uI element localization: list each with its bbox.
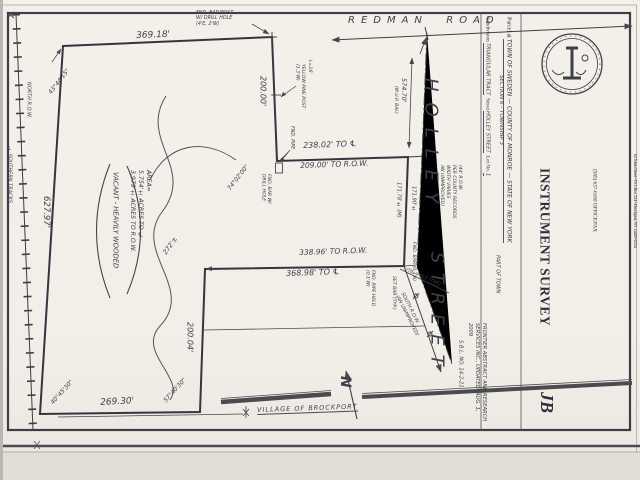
area-to-cl: 5.754'± ACRES TO ℄ xyxy=(137,170,144,239)
ne-note-leader xyxy=(252,24,269,34)
surveyor-monogram: JB xyxy=(537,392,556,413)
scan-background xyxy=(0,453,640,480)
scanned-survey-sheet: REDMAN ROAD 369.18' FND. BAR/POST W/ DRI… xyxy=(0,0,640,480)
pinwheel-icon xyxy=(243,406,249,418)
dim-west-line: 627.97' xyxy=(41,196,50,286)
village-line-band-left xyxy=(221,394,331,402)
subdivision-value: TRIANGULAR TRACT xyxy=(483,43,491,95)
form-line-parcel: Parcel at TOWN OF SWEDEN — COUNTY OF MON… xyxy=(505,17,511,427)
holley-row-note: (44' R.O.W. PER COUNTY RECORDS WIDTH VAR… xyxy=(438,165,462,243)
railroad-centerline-label: ℄ SOUTHERN TRACKS xyxy=(6,146,11,266)
lot-value: 1 xyxy=(483,173,491,176)
village-line-band-right xyxy=(362,383,632,397)
street-value: HOLLEY STREET xyxy=(483,111,491,153)
area-to-row: 3.979'± ACRES TO R.O.W. xyxy=(129,170,136,252)
area-label: AREA= xyxy=(145,170,152,192)
nw-angle-leader xyxy=(52,49,61,62)
holley-cl-dim-line xyxy=(409,58,412,148)
firm-title-block: A.J. BAREA-PLS Professional Land Surveyo… xyxy=(556,86,640,316)
sbl-number-note: S.B.L. NO. 14-2-21 xyxy=(457,340,463,430)
north-arrow-letter: N xyxy=(337,376,352,398)
parcel-at-label: Parcel at xyxy=(505,17,511,39)
surveyor-seal-icon xyxy=(542,34,602,94)
part-of-town-note: PART OF TOWN xyxy=(494,255,499,315)
l16-note: L=16' xyxy=(306,60,311,90)
ne-monument-note: FND. BAR/POST W/ DRILL HOLE (4'E, 2'W) xyxy=(196,11,233,27)
dim-holley-cl-574-note: (M.U.P. BAL) xyxy=(392,86,397,146)
firm-phone: (585) 637-6180 OFFICE/FAX xyxy=(591,86,598,316)
dim-east-line-1: 200.00' xyxy=(258,76,267,146)
lot-label: Lot No. xyxy=(485,153,491,173)
dim-holley-cl-574: 574.70' xyxy=(400,78,407,153)
dim-north-line: 369.18' xyxy=(136,31,170,42)
monument-box-icon xyxy=(276,163,283,173)
found-point-arrow xyxy=(420,38,426,54)
area-condition: VACANT - HEAVILY WOODED xyxy=(111,172,118,300)
fnd-pipe-note: FND. PIPE xyxy=(289,126,294,166)
area-block: AREA= 5.754'± ACRES TO ℄ 3.979'± ACRES T… xyxy=(128,170,152,308)
set-bar-note: SET BAR (TYP.) xyxy=(390,276,395,331)
area-leader-arc xyxy=(150,147,236,180)
dim-holley-cl: 171.90'± xyxy=(410,186,416,246)
scan-left-edge xyxy=(0,0,3,480)
railroad-row-label: NORTH R.O.W. xyxy=(25,82,30,152)
yellow-pine-note: YELLOW PINE POST (1.3'W) xyxy=(294,64,305,119)
pipe-held-note: FND. PIPE HELD (0.1'W) xyxy=(364,270,375,325)
village-leader xyxy=(58,414,243,417)
street-label: Street xyxy=(485,95,491,111)
dim-holley-west-row: 171.78'± (M) xyxy=(395,182,401,252)
document-type-title: INSTRUMENT SURVEY xyxy=(537,168,552,363)
drill-hole-note: FND. BAR W/ DRILL HOLE xyxy=(260,174,271,219)
firm-address: 62 Main Street • P.O. Box 224 • Brockpor… xyxy=(632,86,638,316)
subdivision-label: Subdivision xyxy=(485,17,491,43)
parcel-boundary xyxy=(40,37,408,414)
abstract-reference-note: FRONTIER ABSTRACT AND RESEARCH SERVICES … xyxy=(466,323,487,431)
redman-road-label: REDMAN ROAD xyxy=(348,16,500,27)
section-township-note: SECTION 6 - TOWNSHIP 3 xyxy=(497,75,503,205)
municipality-value: TOWN OF SWEDEN — COUNTY OF MONROE — STAT… xyxy=(503,39,512,243)
dim-south-line: 269.30' xyxy=(100,397,134,408)
paren-left xyxy=(97,164,111,298)
